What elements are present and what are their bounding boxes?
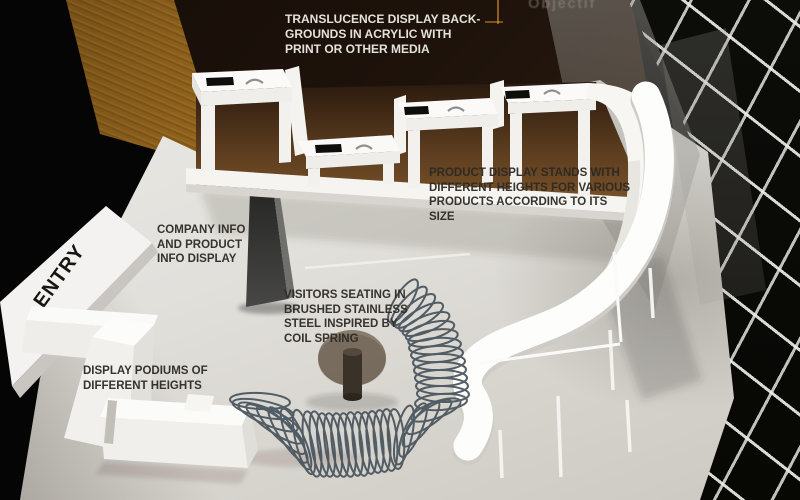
- structures-layer: ENTRY: [0, 0, 800, 500]
- label-line: BRUSHED STAINLESS: [284, 303, 408, 318]
- label-line: INFO DISPLAY: [157, 252, 245, 267]
- label-line: STEEL INSPIRED BY: [284, 317, 408, 332]
- exhibition-design-render: Objectif ENTRY: [0, 0, 800, 500]
- label-line: SIZE: [429, 210, 630, 225]
- label-line: TRANSLUCENCE DISPLAY BACK-: [285, 12, 480, 27]
- stand-slot: [206, 77, 234, 86]
- label-company-info: COMPANY INFO AND PRODUCT INFO DISPLAY: [157, 223, 245, 267]
- label-line: COMPANY INFO: [157, 223, 245, 238]
- stand-slot: [505, 90, 530, 99]
- label-translucence-display: TRANSLUCENCE DISPLAY BACK- GROUNDS IN AC…: [285, 12, 480, 57]
- stand-slot: [315, 144, 342, 153]
- label-product-stands: PRODUCT DISPLAY STANDS WITH DIFFERENT HE…: [429, 166, 630, 224]
- label-line: GROUNDS IN ACRYLIC WITH: [285, 27, 480, 42]
- label-line: DISPLAY PODIUMS OF: [83, 364, 208, 379]
- label-line: AND PRODUCT: [157, 238, 245, 253]
- label-line: COIL SPRING: [284, 332, 408, 347]
- label-line: DIFFERENT HEIGHTS FOR VARIOUS: [429, 181, 630, 196]
- label-line: PRODUCTS ACCORDING TO ITS: [429, 195, 630, 210]
- label-line: PRINT OR OTHER MEDIA: [285, 42, 480, 57]
- label-line: PRODUCT DISPLAY STANDS WITH: [429, 166, 630, 181]
- label-line: DIFFERENT HEIGHTS: [83, 379, 208, 394]
- label-line: VISITORS SEATING IN: [284, 288, 408, 303]
- label-display-podiums: DISPLAY PODIUMS OF DIFFERENT HEIGHTS: [83, 364, 208, 393]
- table-pedestal: [343, 352, 362, 398]
- stand-slot: [404, 106, 429, 115]
- label-visitors-seating: VISITORS SEATING IN BRUSHED STAINLESS ST…: [284, 288, 408, 346]
